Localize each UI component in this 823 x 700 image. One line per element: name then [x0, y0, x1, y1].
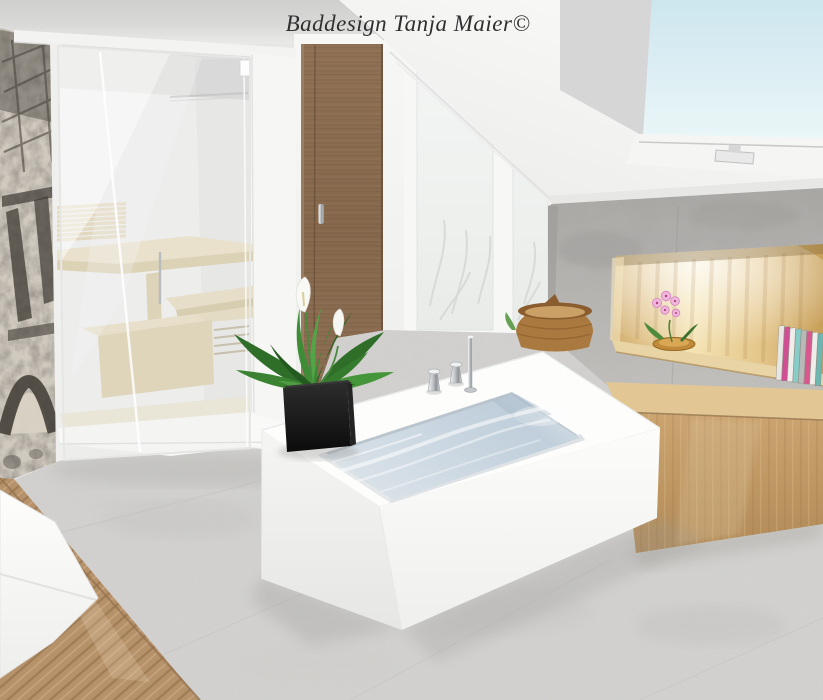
faucet-spout — [468, 337, 473, 390]
bathroom-rendering: Baddesign Tanja Maier© — [0, 0, 823, 700]
skylight-sky — [643, 0, 823, 138]
niche-books — [776, 326, 823, 386]
rendering-canvas: Baddesign Tanja Maier© — [0, 0, 823, 700]
sauna-glass — [58, 46, 250, 460]
glass-hinge — [240, 60, 250, 76]
door-handle — [319, 204, 324, 224]
black-planter — [283, 380, 356, 452]
watermark-text: Baddesign Tanja Maier© — [286, 11, 531, 36]
